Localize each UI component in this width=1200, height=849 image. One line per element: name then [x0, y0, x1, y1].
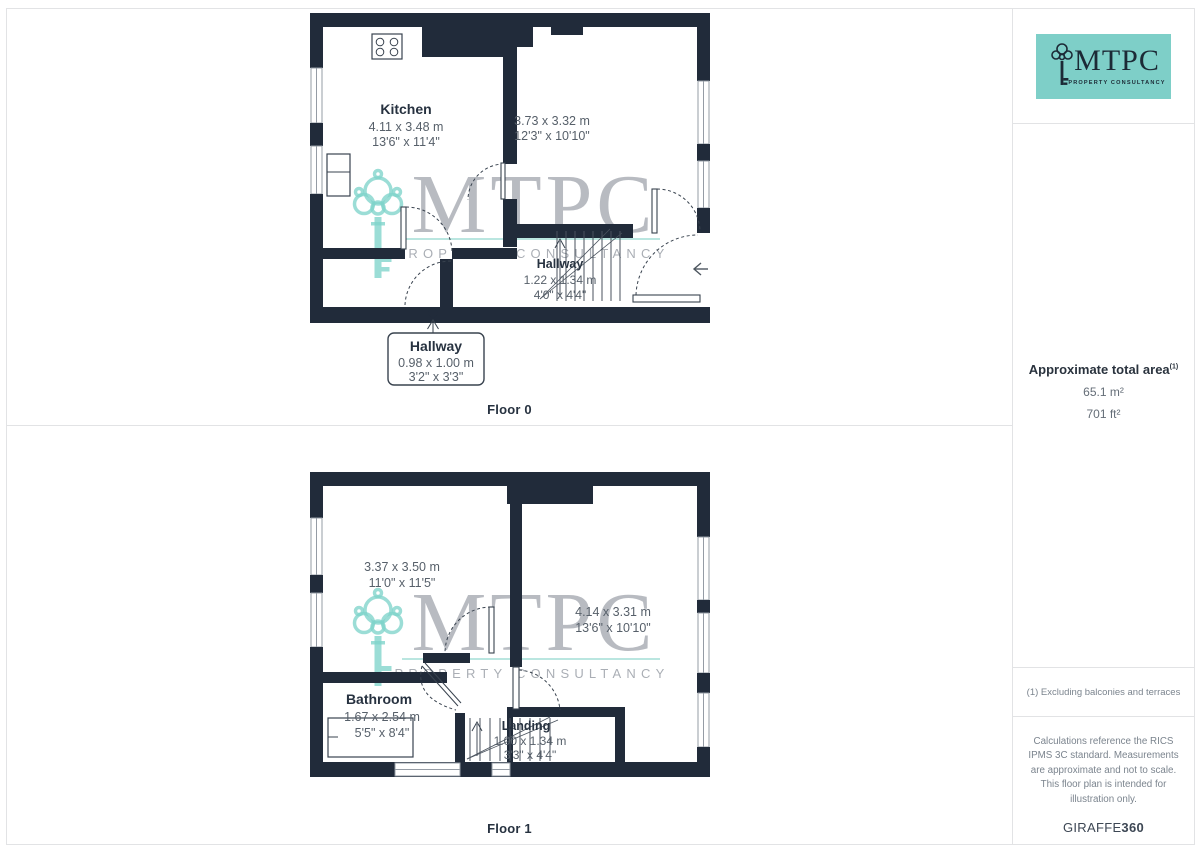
floor1-plan: MTPC PROPERTY CONSULTANCY — [310, 470, 710, 795]
room-metric-label: 1.67 x 2.54 m — [344, 710, 420, 724]
room-metric-label: 3.37 x 3.50 m — [364, 560, 440, 574]
key-icon — [354, 171, 401, 279]
floor0-plan: MTPC PROPERTY CONSULTANCY — [310, 11, 710, 394]
callout-imperial-label: 3'2" x 3'3" — [408, 370, 463, 384]
kitchen-counter — [327, 154, 350, 196]
page-frame: MTPC PROPERTY CONSULTANCY — [6, 8, 1195, 845]
brand-name: MTPC — [1074, 44, 1160, 77]
room-name-label: Kitchen — [380, 101, 431, 117]
room-name-label: Bathroom — [345, 691, 411, 707]
room-name-label: Landing — [501, 719, 550, 733]
room-imperial-label: 13'6" x 11'4" — [372, 135, 440, 149]
sidebar: MTPC PROPERTY CONSULTANCY Approximate to… — [1013, 9, 1194, 844]
brand-tagline: PROPERTY CONSULTANCY — [1068, 80, 1165, 86]
callout-metric-label: 0.98 x 1.00 m — [398, 356, 474, 370]
generator-logo: GIRAFFE360 — [1013, 820, 1194, 835]
room-metric-label: 3.73 x 3.32 m — [514, 114, 590, 128]
area-section: Approximate total area(1) 65.1 m² 701 ft… — [1013, 124, 1194, 667]
footnote: (1) Excluding balconies and terraces — [1013, 667, 1194, 716]
stove-icon — [372, 34, 402, 59]
room-metric-label: 4.14 x 3.31 m — [575, 605, 651, 619]
key-icon — [1052, 44, 1072, 85]
area-title: Approximate total area(1) — [1013, 362, 1194, 377]
room-metric-label: 1.00 x 1.34 m — [493, 734, 566, 748]
disclaimer-text: Calculations reference the RICS IPMS 3C … — [1028, 735, 1180, 807]
room-imperial-label: 13'6" x 10'10" — [575, 621, 651, 635]
floor1-label: Floor 1 — [487, 821, 532, 836]
floor0-plan-svg: MTPC PROPERTY CONSULTANCY — [310, 11, 710, 389]
floor1-plan-svg: MTPC PROPERTY CONSULTANCY — [310, 470, 710, 790]
floor1-panel: MTPC PROPERTY CONSULTANCY — [7, 426, 1012, 844]
floor0-panel: MTPC PROPERTY CONSULTANCY — [7, 9, 1012, 426]
room-imperial-label: 5'5" x 8'4" — [354, 726, 409, 740]
area-footnote-marker: (1) — [1170, 364, 1179, 371]
room-name-label: Hallway — [536, 257, 583, 271]
room-metric-label: 4.11 x 3.48 m — [368, 120, 443, 134]
entrance-arrow-icon — [694, 263, 708, 275]
area-metric: 65.1 m² — [1013, 385, 1194, 399]
callout-name-label: Hallway — [409, 338, 461, 354]
brand-logo-svg: MTPC PROPERTY CONSULTANCY — [1036, 34, 1171, 99]
floor0-label: Floor 0 — [487, 402, 532, 417]
logo-section: MTPC PROPERTY CONSULTANCY — [1013, 9, 1194, 124]
room-metric-label: 1.22 x 1.34 m — [523, 273, 596, 287]
area-imperial: 701 ft² — [1013, 407, 1194, 421]
disclaimer-section: Calculations reference the RICS IPMS 3C … — [1013, 716, 1194, 844]
floorplan-main-area: MTPC PROPERTY CONSULTANCY — [7, 9, 1013, 844]
room-imperial-label: 3'3" x 4'4" — [503, 748, 555, 762]
room-imperial-label: 11'0" x 11'5" — [368, 576, 435, 590]
watermark-tagline: PROPERTY CONSULTANCY — [394, 246, 669, 261]
room-imperial-label: 4'0" x 4'4" — [533, 288, 585, 302]
room-imperial-label: 12'3" x 10'10" — [514, 129, 590, 143]
brand-logo: MTPC PROPERTY CONSULTANCY — [1036, 34, 1171, 99]
